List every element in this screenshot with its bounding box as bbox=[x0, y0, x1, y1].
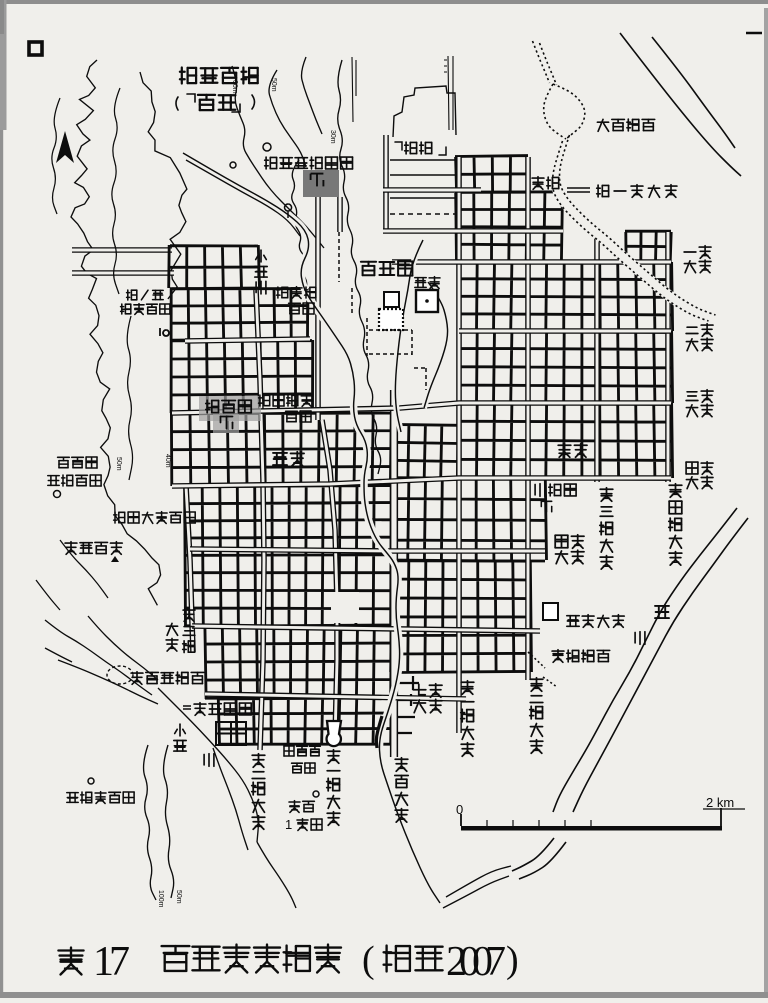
svg-text:50m: 50m bbox=[115, 457, 122, 471]
svg-text:40m: 40m bbox=[164, 454, 171, 468]
svg-text:50m: 50m bbox=[175, 890, 182, 904]
svg-text:(: ( bbox=[362, 939, 375, 981]
svg-text:2 km: 2 km bbox=[706, 795, 734, 810]
svg-text:17: 17 bbox=[93, 939, 130, 985]
svg-text:30m: 30m bbox=[329, 130, 336, 144]
svg-text:0: 0 bbox=[456, 802, 463, 817]
svg-text:2007: 2007 bbox=[446, 939, 506, 985]
svg-text:60m: 60m bbox=[231, 80, 238, 94]
svg-text:100m: 100m bbox=[157, 890, 164, 908]
svg-text:1: 1 bbox=[285, 817, 292, 832]
svg-text:50m: 50m bbox=[270, 78, 277, 92]
svg-text:): ) bbox=[506, 939, 519, 981]
